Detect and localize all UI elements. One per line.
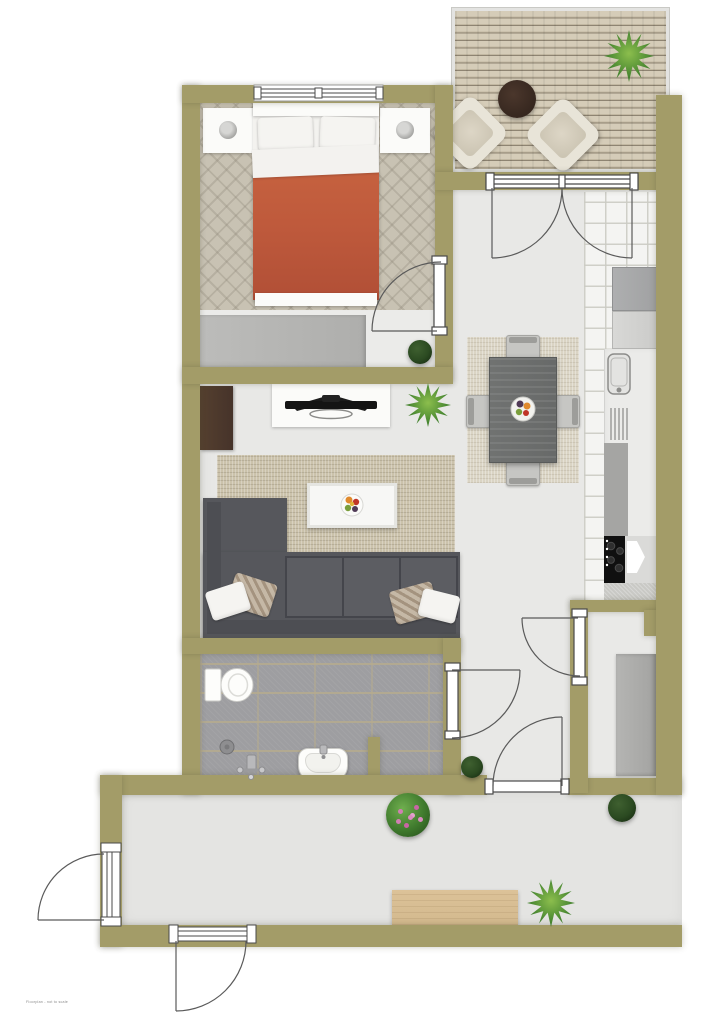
bed-pillow bbox=[257, 116, 313, 151]
wall-bottom bbox=[100, 925, 682, 947]
bed-footboard bbox=[255, 293, 377, 306]
dining-chair-bottom bbox=[506, 459, 540, 486]
watermark-text: Floorplan - not to scale bbox=[26, 1000, 68, 1004]
bedroom-wardrobe bbox=[200, 315, 366, 368]
dining-table bbox=[489, 357, 557, 463]
chair-backrest bbox=[509, 337, 537, 343]
dining-chair-right bbox=[555, 395, 580, 428]
flowers bbox=[408, 815, 413, 820]
bedroom-plant-icon bbox=[408, 340, 432, 364]
floor-plan: Floorplan - not to scale bbox=[0, 0, 724, 1024]
chair-backrest bbox=[572, 398, 578, 425]
bed-sheet-fold bbox=[252, 145, 379, 178]
wall-left bbox=[182, 85, 200, 795]
sofa-backrest bbox=[207, 620, 456, 634]
storage-wardrobe bbox=[616, 654, 656, 776]
hallway-plant-icon bbox=[608, 794, 636, 822]
wall-right bbox=[656, 95, 682, 795]
lamp-left bbox=[219, 121, 237, 139]
fridge bbox=[612, 267, 658, 311]
flowering-plant-icon bbox=[386, 793, 430, 837]
coffee-table bbox=[307, 483, 397, 528]
wall-bathroom-top bbox=[182, 638, 461, 654]
brown-cabinet bbox=[200, 386, 233, 450]
tv-console bbox=[272, 383, 390, 427]
dining-chair-left bbox=[466, 395, 491, 428]
inner-hall-plant-icon bbox=[461, 756, 483, 778]
seat-cushion bbox=[287, 558, 342, 616]
balcony-table bbox=[498, 80, 536, 118]
bed-headboard bbox=[253, 103, 379, 116]
hallway-sideboard bbox=[392, 890, 518, 925]
cooktop bbox=[604, 536, 625, 583]
seat-cushion bbox=[344, 558, 399, 616]
bed-duvet bbox=[253, 172, 379, 300]
countertop-section bbox=[604, 443, 628, 536]
wall-hallway-left bbox=[100, 775, 122, 947]
chair-backrest bbox=[468, 398, 474, 425]
watermark: Floorplan - not to scale bbox=[26, 1000, 119, 1009]
wall-bedroom-top bbox=[182, 85, 453, 103]
wall-dining-top bbox=[435, 172, 666, 190]
kitchen-cabinet bbox=[612, 311, 658, 349]
wall-bedroom-right bbox=[435, 85, 453, 383]
chair-cushion bbox=[538, 110, 589, 161]
wall-bedroom-bottom bbox=[182, 367, 453, 384]
chair-backrest bbox=[509, 478, 537, 484]
wall-hallway-top bbox=[100, 775, 487, 795]
wall-bathroom-right bbox=[443, 638, 461, 795]
wall-storage-left bbox=[570, 600, 588, 793]
lamp-right bbox=[396, 121, 414, 139]
counter-end bbox=[604, 583, 658, 601]
basin-bowl bbox=[305, 753, 341, 773]
